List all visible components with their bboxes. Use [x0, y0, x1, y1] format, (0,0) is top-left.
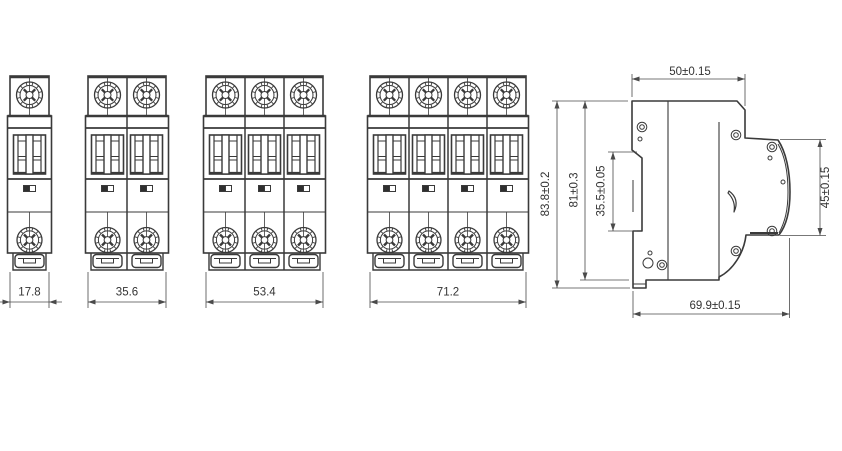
terminal-screw-icon	[416, 82, 442, 108]
toggle-lever	[222, 135, 229, 174]
screw-knurl-tick	[399, 92, 402, 93]
screw-knurl-tick	[217, 231, 219, 233]
screw-knurl-tick	[438, 237, 441, 238]
screw-knurl-tick	[110, 228, 111, 231]
screw-knurl-tick	[306, 249, 307, 252]
dimension-arrow	[782, 312, 790, 317]
screw-knurl-tick	[470, 83, 471, 86]
screw-knurl-tick	[271, 102, 273, 104]
screw-knurl-tick	[300, 249, 301, 252]
screw-knurl-tick	[274, 242, 277, 243]
screw-knurl-tick	[267, 228, 268, 231]
terminal-screw-icon	[17, 82, 43, 108]
screw-knurl-tick	[381, 247, 383, 249]
din-clip	[132, 255, 161, 268]
screw-knurl-tick	[217, 86, 219, 88]
screw-knurl-tick	[435, 231, 437, 233]
screw-knurl-tick	[156, 237, 159, 238]
screw-knurl-tick	[117, 237, 120, 238]
screw-knurl-tick	[503, 249, 504, 252]
screw-knurl-tick	[377, 92, 380, 93]
dimension-arrow	[611, 152, 616, 160]
screw-knurl-tick	[114, 102, 116, 104]
screw-knurl-tick	[300, 105, 301, 108]
screw-knurl-tick	[138, 231, 140, 233]
screw-knurl-tick	[235, 242, 238, 243]
screw-knurl-tick	[256, 247, 258, 249]
toggle-lever	[503, 135, 510, 174]
screw-knurl-tick	[399, 98, 402, 99]
screw-knurl-tick	[256, 102, 258, 104]
screw-knurl-tick	[261, 105, 262, 108]
din-clip	[289, 255, 318, 268]
screw-knurl-tick	[99, 231, 101, 233]
dimension-arrow	[583, 101, 588, 109]
toggle-lever	[261, 135, 268, 174]
screw-knurl-tick	[396, 247, 398, 249]
screw-knurl-tick	[114, 231, 116, 233]
din-clip	[414, 255, 443, 268]
toggle-lever	[143, 135, 150, 174]
side-dimensions-group	[552, 74, 826, 318]
dim-label-din-slot: 35.5±0.05	[596, 165, 608, 216]
screw-knurl-tick	[513, 102, 515, 104]
screw-knurl-tick	[214, 237, 217, 238]
screw-knurl-tick	[253, 242, 256, 243]
screw-knurl-tick	[253, 237, 256, 238]
screw-knurl-tick	[438, 92, 441, 93]
toggle-lever	[386, 135, 393, 174]
screw-knurl-tick	[135, 242, 138, 243]
screw-knurl-tick	[431, 105, 432, 108]
terminal-screw-icon	[455, 82, 481, 108]
screw-knurl-tick	[17, 98, 20, 99]
screw-knurl-tick	[516, 242, 519, 243]
dimension-label-2p: 35.6	[116, 287, 138, 299]
screw-knurl-tick	[438, 242, 441, 243]
status-indicator-off	[429, 186, 435, 192]
screw-knurl-tick	[470, 249, 471, 252]
din-clip	[375, 255, 404, 268]
pole-module	[14, 76, 46, 268]
screw-knurl-tick	[26, 249, 27, 252]
screw-knurl-tick	[495, 242, 498, 243]
dimension-arrow	[519, 300, 527, 305]
terminal-screw-icon	[213, 228, 238, 253]
screw-knurl-tick	[135, 237, 138, 238]
screw-knurl-tick	[235, 92, 238, 93]
screw-knurl-tick	[392, 105, 393, 108]
screw-knurl-tick	[300, 83, 301, 86]
side-view: 50±0.15 83.8±0.2 81±0.3 35.5±0.05 45±0.1…	[540, 66, 832, 318]
dimension-arrow	[88, 300, 96, 305]
dimension-arrow	[611, 224, 616, 232]
screw-knurl-tick	[232, 102, 234, 104]
screw-knurl-tick	[117, 98, 120, 99]
screw-knurl-tick	[214, 242, 217, 243]
screw-knurl-tick	[306, 105, 307, 108]
screw-knurl-tick	[153, 247, 155, 249]
front-view-2-pole	[86, 76, 169, 308]
screw-knurl-tick	[438, 98, 441, 99]
pole-module	[92, 76, 124, 268]
screw-knurl-tick	[114, 86, 116, 88]
terminal-screw-icon	[377, 82, 403, 108]
din-clip-tab	[141, 259, 153, 264]
hole-icon	[768, 156, 772, 160]
screw-knurl-tick	[36, 86, 38, 88]
screw-knurl-tick	[295, 102, 297, 104]
screw-knurl-tick	[110, 105, 111, 108]
screw-knurl-tick	[267, 83, 268, 86]
status-indicator-on	[298, 186, 304, 192]
screw-knurl-tick	[104, 228, 105, 231]
screw-knurl-tick	[95, 98, 98, 99]
screw-knurl-tick	[36, 247, 38, 249]
rivet-icon	[770, 145, 775, 150]
screw-knurl-tick	[503, 83, 504, 86]
screw-knurl-tick	[509, 228, 510, 231]
screw-knurl-tick	[455, 92, 458, 93]
screw-knurl-tick	[477, 98, 480, 99]
dimension-arrow	[633, 312, 641, 317]
screw-knurl-tick	[435, 102, 437, 104]
screw-knurl-tick	[39, 98, 42, 99]
screw-knurl-tick	[420, 102, 422, 104]
din-clip	[250, 255, 279, 268]
drawing-canvas: 17.8 35.6 53.4 71.2 50±0.15 83.8±0.2 81±…	[0, 0, 842, 451]
screw-knurl-tick	[99, 86, 101, 88]
rivet-icon	[657, 260, 667, 270]
screw-knurl-tick	[153, 86, 155, 88]
screw-knurl-tick	[217, 247, 219, 249]
screw-knurl-tick	[228, 105, 229, 108]
screw-knurl-tick	[456, 242, 459, 243]
screw-knurl-tick	[143, 228, 144, 231]
screw-knurl-tick	[274, 237, 277, 238]
screw-knurl-tick	[470, 105, 471, 108]
screw-knurl-tick	[464, 228, 465, 231]
screw-knurl-tick	[516, 98, 519, 99]
screw-knurl-tick	[295, 247, 297, 249]
screw-knurl-tick	[459, 247, 461, 249]
screw-knurl-tick	[498, 247, 500, 249]
status-indicator-on	[102, 186, 108, 192]
screw-knurl-tick	[213, 92, 216, 93]
screw-knurl-tick	[256, 231, 258, 233]
dim-label-top-width: 50±0.15	[669, 66, 711, 78]
screw-knurl-tick	[134, 92, 137, 93]
screw-knurl-tick	[313, 242, 316, 243]
screw-knurl-tick	[138, 86, 140, 88]
screw-knurl-tick	[213, 98, 216, 99]
screw-knurl-tick	[498, 86, 500, 88]
hole-icon	[638, 137, 642, 141]
dimension-arrow	[555, 101, 560, 109]
screw-knurl-tick	[431, 249, 432, 252]
screw-knurl-tick	[32, 249, 33, 252]
screw-knurl-tick	[117, 92, 120, 93]
screw-knurl-tick	[306, 83, 307, 86]
screw-knurl-tick	[271, 231, 273, 233]
screw-knurl-tick	[431, 228, 432, 231]
screw-knurl-tick	[306, 228, 307, 231]
screw-knurl-tick	[26, 228, 27, 231]
status-indicator-on	[384, 186, 390, 192]
rivet-icon	[734, 133, 739, 138]
screw-knurl-tick	[420, 247, 422, 249]
pole-module	[245, 76, 281, 270]
screw-knurl-tick	[32, 83, 33, 86]
screw-knurl-tick	[420, 231, 422, 233]
screw-knurl-tick	[494, 92, 497, 93]
status-indicator-off	[108, 186, 114, 192]
screw-knurl-tick	[156, 92, 159, 93]
screw-knurl-tick	[509, 249, 510, 252]
screw-knurl-tick	[498, 102, 500, 104]
screw-knurl-tick	[386, 228, 387, 231]
screw-knurl-tick	[114, 247, 116, 249]
status-indicator-off	[468, 186, 474, 192]
front-view-4-pole	[368, 76, 529, 308]
screw-knurl-tick	[464, 105, 465, 108]
din-clip-tab	[462, 259, 474, 264]
screw-knurl-tick	[104, 249, 105, 252]
status-indicator-off	[226, 186, 232, 192]
screw-knurl-tick	[399, 237, 402, 238]
screw-knurl-tick	[104, 105, 105, 108]
pole-module	[409, 76, 445, 270]
screw-knurl-tick	[495, 237, 498, 238]
rivet-icon	[640, 125, 645, 130]
screw-knurl-tick	[381, 102, 383, 104]
screw-knurl-tick	[117, 242, 120, 243]
screw-knurl-tick	[295, 231, 297, 233]
screw-knurl-tick	[513, 231, 515, 233]
screw-knurl-tick	[378, 242, 381, 243]
rivet-icon	[731, 246, 741, 256]
din-clip	[492, 255, 521, 268]
toggle-lever	[26, 135, 33, 174]
status-indicator-off	[304, 186, 310, 192]
dim-label-front-height: 45±0.15	[820, 167, 832, 209]
screw-knurl-tick	[459, 86, 461, 88]
screw-knurl-tick	[456, 237, 459, 238]
toggle-lever	[464, 135, 471, 174]
screw-knurl-tick	[396, 102, 398, 104]
screw-knurl-tick	[386, 105, 387, 108]
screw-knurl-tick	[417, 242, 420, 243]
screw-knurl-tick	[156, 98, 159, 99]
screw-knurl-tick	[134, 98, 137, 99]
hole-icon	[781, 180, 785, 184]
screw-knurl-tick	[292, 237, 295, 238]
screw-knurl-tick	[39, 237, 42, 238]
screw-knurl-tick	[271, 86, 273, 88]
screw-knurl-tick	[455, 98, 458, 99]
dimension-arrow	[583, 273, 588, 281]
screw-knurl-tick	[252, 92, 255, 93]
screw-knurl-tick	[228, 249, 229, 252]
screw-knurl-tick	[300, 228, 301, 231]
din-clip-tab	[102, 259, 114, 264]
screw-knurl-tick	[138, 247, 140, 249]
status-indicator-off	[147, 186, 153, 192]
screw-knurl-tick	[295, 86, 297, 88]
screw-knurl-tick	[516, 92, 519, 93]
dimension-arrow	[316, 300, 324, 305]
screw-knurl-tick	[21, 102, 23, 104]
screw-knurl-tick	[95, 92, 98, 93]
screw-knurl-tick	[435, 86, 437, 88]
terminal-screw-icon	[377, 228, 402, 253]
rivet-icon	[734, 249, 739, 254]
screw-knurl-tick	[21, 86, 23, 88]
screw-knurl-tick	[222, 105, 223, 108]
toggle-lever	[425, 135, 432, 174]
screw-knurl-tick	[96, 242, 99, 243]
screw-knurl-tick	[420, 86, 422, 88]
screw-knurl-tick	[143, 83, 144, 86]
screw-knurl-tick	[474, 102, 476, 104]
screw-knurl-tick	[232, 247, 234, 249]
screw-knurl-tick	[474, 231, 476, 233]
screw-knurl-tick	[39, 242, 42, 243]
mcb-dimension-drawing: 17.8 35.6 53.4 71.2 50±0.15 83.8±0.2 81±…	[0, 0, 842, 451]
dimension-arrow	[49, 300, 57, 305]
front-view-3-pole	[204, 76, 326, 308]
din-clip-tab	[259, 259, 271, 264]
screw-knurl-tick	[416, 98, 419, 99]
status-indicator-on	[501, 186, 507, 192]
terminal-screw-icon	[416, 228, 441, 253]
terminal-screw-icon	[95, 82, 121, 108]
screw-knurl-tick	[310, 102, 312, 104]
screw-knurl-tick	[228, 83, 229, 86]
din-clip-tab	[384, 259, 396, 264]
pole-module	[487, 76, 523, 270]
screw-knurl-tick	[149, 105, 150, 108]
screw-knurl-tick	[399, 242, 402, 243]
screw-knurl-tick	[252, 98, 255, 99]
screw-knurl-tick	[313, 92, 316, 93]
dimension-arrow	[370, 300, 378, 305]
screw-knurl-tick	[513, 247, 515, 249]
screw-knurl-tick	[274, 92, 277, 93]
terminal-screw-icon	[252, 228, 277, 253]
dimension-label-1p: 17.8	[18, 287, 40, 299]
terminal-screw-icon	[134, 228, 159, 253]
screw-knurl-tick	[235, 98, 238, 99]
screw-knurl-tick	[313, 237, 316, 238]
status-indicator-off	[265, 186, 271, 192]
screw-knurl-tick	[474, 247, 476, 249]
status-indicator-on	[423, 186, 429, 192]
screw-knurl-tick	[110, 249, 111, 252]
screw-knurl-tick	[417, 237, 420, 238]
rivet-icon	[660, 263, 665, 268]
screw-knurl-tick	[149, 228, 150, 231]
screw-knurl-tick	[292, 242, 295, 243]
screw-knurl-tick	[386, 83, 387, 86]
screw-knurl-tick	[232, 86, 234, 88]
dimension-arrow	[818, 140, 823, 148]
dimension-arrow	[555, 281, 560, 289]
screw-knurl-tick	[474, 86, 476, 88]
screw-knurl-tick	[310, 247, 312, 249]
screw-knurl-tick	[274, 98, 277, 99]
screw-knurl-tick	[96, 237, 99, 238]
rivet-icon	[767, 142, 777, 152]
screw-knurl-tick	[477, 242, 480, 243]
screw-knurl-tick	[425, 105, 426, 108]
side-outline	[632, 101, 790, 288]
screw-knurl-tick	[36, 102, 38, 104]
status-indicator-on	[462, 186, 468, 192]
screw-knurl-tick	[149, 249, 150, 252]
screw-knurl-tick	[425, 83, 426, 86]
screw-knurl-tick	[509, 83, 510, 86]
terminal-screw-icon	[291, 82, 317, 108]
screw-knurl-tick	[21, 231, 23, 233]
status-indicator-off	[30, 186, 36, 192]
screw-knurl-tick	[425, 228, 426, 231]
screw-knurl-tick	[310, 231, 312, 233]
pole-module	[284, 76, 320, 270]
screw-knurl-tick	[17, 92, 20, 93]
front-views-group	[0, 76, 529, 308]
screw-knurl-tick	[256, 86, 258, 88]
screw-knurl-tick	[32, 105, 33, 108]
rivet-icon	[731, 130, 741, 140]
screw-knurl-tick	[104, 83, 105, 86]
screw-knurl-tick	[235, 237, 238, 238]
screw-knurl-tick	[291, 98, 294, 99]
dim-label-body-height: 81±0.3	[569, 172, 581, 207]
dimension-arrow	[159, 300, 167, 305]
screw-knurl-tick	[435, 247, 437, 249]
dimension-arrow	[3, 300, 11, 305]
status-indicator-on	[220, 186, 226, 192]
din-clip-tab	[298, 259, 310, 264]
screw-knurl-tick	[425, 249, 426, 252]
screw-knurl-tick	[39, 92, 42, 93]
toggle-lever	[104, 135, 111, 174]
screw-knurl-tick	[509, 105, 510, 108]
status-indicator-on	[259, 186, 265, 192]
screw-knurl-tick	[381, 86, 383, 88]
screw-knurl-tick	[477, 237, 480, 238]
screw-knurl-tick	[153, 102, 155, 104]
toggle-side-profile	[728, 191, 736, 212]
screw-knurl-tick	[310, 86, 312, 88]
screw-knurl-tick	[431, 83, 432, 86]
status-indicator-on	[141, 186, 147, 192]
pole-module	[210, 76, 242, 268]
screw-knurl-tick	[470, 228, 471, 231]
screw-knurl-tick	[377, 98, 380, 99]
screw-knurl-tick	[222, 83, 223, 86]
screw-knurl-tick	[222, 228, 223, 231]
din-clip-tab	[423, 259, 435, 264]
screw-knurl-tick	[36, 231, 38, 233]
screw-knurl-tick	[143, 249, 144, 252]
screw-knurl-tick	[232, 231, 234, 233]
screw-knurl-tick	[261, 228, 262, 231]
screw-knurl-tick	[464, 83, 465, 86]
screw-knurl-tick	[18, 237, 21, 238]
screw-knurl-tick	[149, 83, 150, 86]
